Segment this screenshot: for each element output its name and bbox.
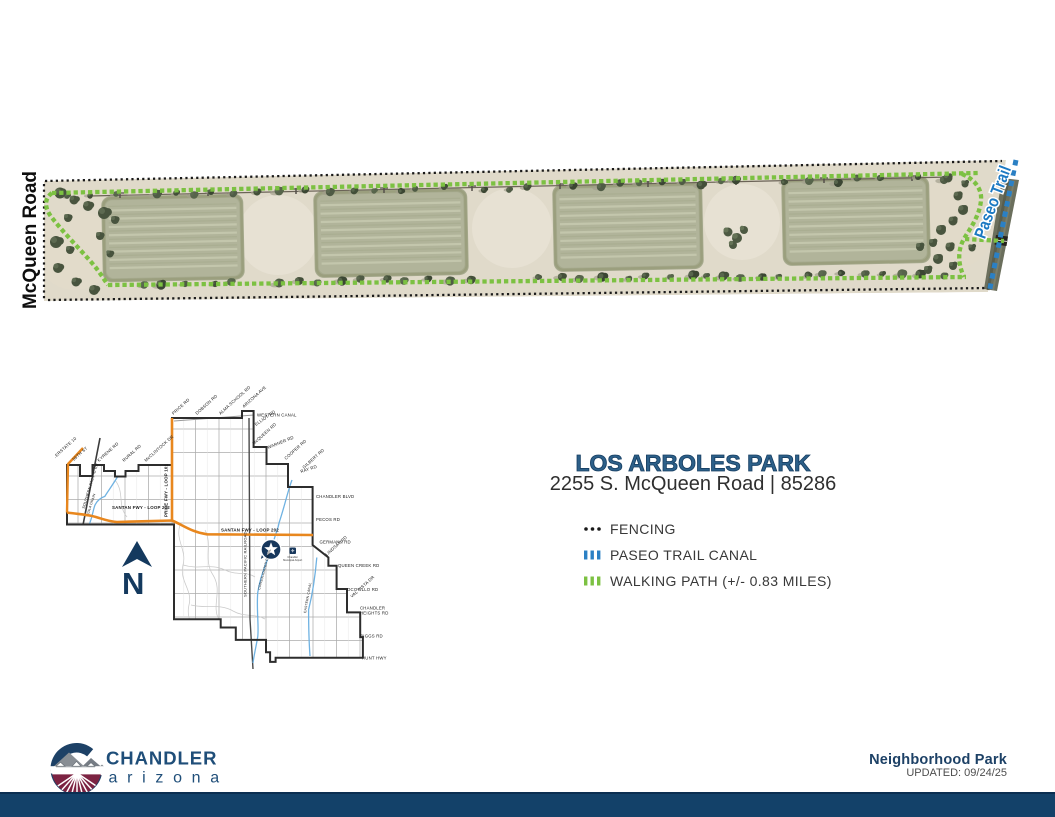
svg-text:GERMANN RD: GERMANN RD <box>320 540 351 545</box>
svg-text:SANTAN FWY - LOOP 202: SANTAN FWY - LOOP 202 <box>221 528 279 533</box>
svg-text:McQueen Road: McQueen Road <box>20 171 41 309</box>
svg-text:HUNT HWY: HUNT HWY <box>362 656 387 661</box>
svg-text:SOUTHERN PACIFIC RAILROAD: SOUTHERN PACIFIC RAILROAD <box>243 531 248 597</box>
svg-text:DOBSON RD: DOBSON RD <box>194 393 218 415</box>
svg-text:N: N <box>122 566 144 601</box>
svg-text:56TH ST: 56TH ST <box>71 445 88 461</box>
svg-text:KYRENE RD: KYRENE RD <box>96 441 119 463</box>
svg-text:PRICE FWY - LOOP 101: PRICE FWY - LOOP 101 <box>164 464 169 517</box>
svg-text:HEIGHTS RD: HEIGHTS RD <box>360 611 389 616</box>
svg-text:WARNER RD: WARNER RD <box>267 435 295 450</box>
svg-text:WESTERN CANAL: WESTERN CANAL <box>257 413 297 418</box>
svg-text:CHANDLER BLVD: CHANDLER BLVD <box>316 494 354 499</box>
svg-text:PRICE RD: PRICE RD <box>171 397 191 416</box>
svg-text:PECOS RD: PECOS RD <box>316 517 340 522</box>
svg-text:arizona: arizona <box>109 770 229 787</box>
svg-text:LINDSAY RD: LINDSAY RD <box>324 535 348 557</box>
svg-text:✈: ✈ <box>291 549 295 555</box>
svg-text:Municipal Airport: Municipal Airport <box>283 558 302 562</box>
svg-text:SANTAN FWY - LOOP 202: SANTAN FWY - LOOP 202 <box>112 505 170 510</box>
svg-text:McCLINTOCK DR: McCLINTOCK DR <box>143 434 174 463</box>
svg-text:RIGGS RD: RIGGS RD <box>360 634 383 639</box>
svg-text:CHANDLER: CHANDLER <box>106 748 217 769</box>
svg-text:QUEEN CREEK RD: QUEEN CREEK RD <box>338 563 379 568</box>
svg-text:RURAL RD: RURAL RD <box>121 443 142 462</box>
svg-text:OCOTILLO RD: OCOTILLO RD <box>347 587 378 592</box>
